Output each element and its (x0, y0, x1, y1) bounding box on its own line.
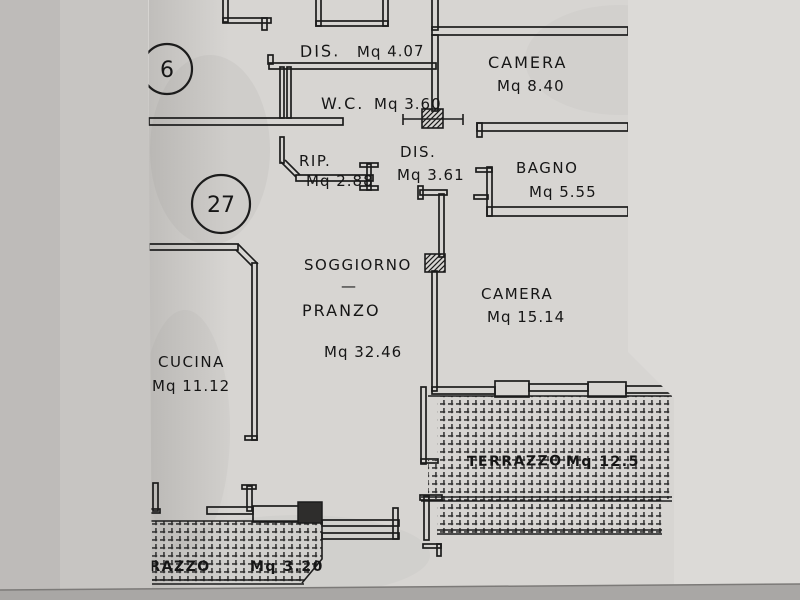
room-label-wc: W.C. (321, 94, 364, 113)
room-area-terrazzo-small: Mq 3.20 (250, 559, 324, 575)
room-area-dis-mid: Mq 3.61 (397, 166, 465, 184)
room-label-dis-top: DIS. (300, 41, 341, 61)
room-label-rip: RIP. (299, 152, 331, 170)
column-pillar (425, 254, 445, 272)
room-label-terrazzo-large: TERRAZZO (467, 453, 563, 470)
room-label-cucina: CUCINA (158, 353, 225, 371)
floorplan-svg: 6 27 DIS. Mq 4.07 CAMERA Mq 8.40 W.C. Mq… (0, 0, 800, 600)
room-area-terrazzo-large: Mq 12.5 (566, 454, 640, 470)
room-label-camera-top: CAMERA (488, 53, 567, 72)
floorplan-photo: 6 27 DIS. Mq 4.07 CAMERA Mq 8.40 W.C. Mq… (0, 0, 800, 600)
room-label-bagno: BAGNO (516, 159, 578, 177)
room-area-rip: Mq 2.88 (306, 172, 374, 190)
room-area-camera-top: Mq 8.40 (497, 77, 565, 95)
room-area-dis-top: Mq 4.07 (357, 42, 425, 61)
unit-marker-6-number: 6 (160, 58, 174, 83)
room-area-wc: Mq 3.60 (374, 95, 442, 113)
unit-marker-27-number: 27 (207, 193, 235, 218)
room-area-bagno: Mq 5.55 (529, 183, 597, 201)
room-area-soggiorno: Mq 32.46 (324, 343, 402, 361)
column-pillar-dark (298, 502, 322, 523)
room-area-camera-main: Mq 15.14 (487, 308, 565, 326)
room-area-cucina: Mq 11.12 (152, 377, 230, 395)
room-label-soggiorno-dash: — (341, 277, 358, 295)
room-label-pranzo: PRANZO (302, 301, 381, 320)
photo-edge-left-shadow (0, 0, 60, 600)
room-label-camera-main: CAMERA (481, 285, 553, 303)
room-label-dis-mid: DIS. (400, 143, 436, 161)
room-label-soggiorno: SOGGIORNO (304, 256, 412, 274)
